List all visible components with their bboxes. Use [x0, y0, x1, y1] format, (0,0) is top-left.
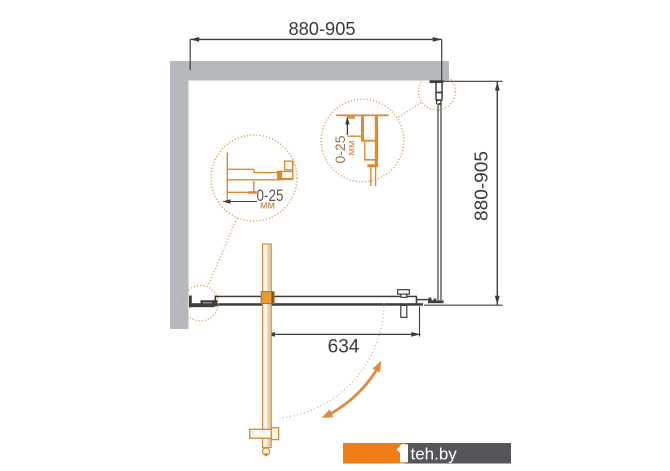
svg-text:teh.by: teh.by	[411, 445, 458, 464]
svg-text:634: 634	[328, 337, 360, 358]
svg-text:880-905: 880-905	[472, 151, 492, 221]
svg-text:мм: мм	[346, 141, 358, 156]
svg-text:880-905: 880-905	[289, 19, 356, 39]
svg-text:мм: мм	[260, 199, 275, 211]
